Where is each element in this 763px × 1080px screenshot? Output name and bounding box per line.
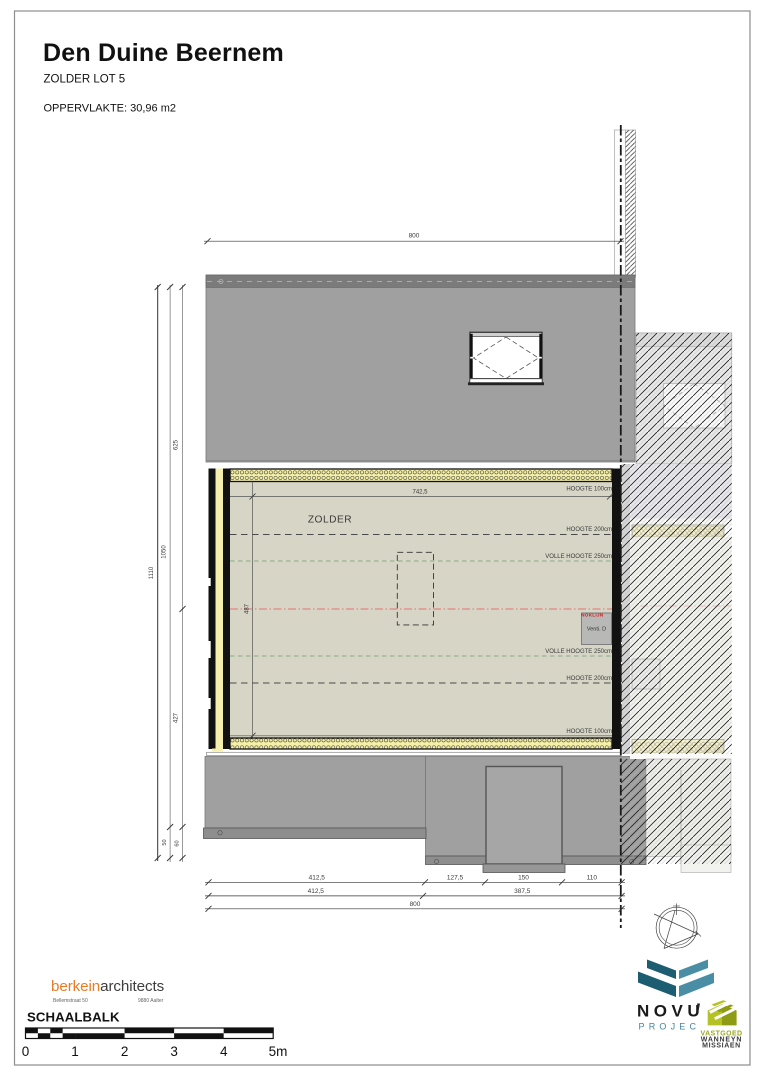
svg-text:NOVU: NOVU [637,1002,704,1021]
svg-text:ZOLDER: ZOLDER [308,515,352,526]
svg-text:SCHAALBALK: SCHAALBALK [27,1010,120,1025]
svg-text:berkeinarchitects: berkeinarchitects [51,978,165,995]
svg-text:1: 1 [71,1044,79,1059]
svg-text:ZOLDER LOT 5: ZOLDER LOT 5 [44,74,126,86]
svg-text:Venti. D: Venti. D [587,627,606,633]
svg-text:625: 625 [174,439,180,450]
svg-text:127,5: 127,5 [447,874,464,881]
svg-text:NOKLIJN: NOKLIJN [581,613,604,619]
svg-text:OPPERVLAKTE: 30,96 m2: OPPERVLAKTE: 30,96 m2 [44,103,176,115]
svg-text:742,5: 742,5 [412,490,428,496]
svg-text:1110: 1110 [149,566,155,579]
svg-text:Bellemstraat 50: Bellemstraat 50 [53,998,88,1004]
svg-text:387,5: 387,5 [514,888,531,895]
svg-text:2: 2 [121,1044,129,1059]
svg-text:HOOGTE 100cm: HOOGTE 100cm [566,487,612,493]
svg-text:5m: 5m [269,1044,288,1059]
svg-text:HOOGTE 200cm: HOOGTE 200cm [566,676,612,682]
svg-text:3: 3 [170,1044,178,1059]
svg-text:9880 Aalter: 9880 Aalter [138,998,164,1004]
svg-text:412,5: 412,5 [309,874,326,881]
svg-text:800: 800 [410,901,421,908]
svg-text:VOLLE HOOGTE 250cm: VOLLE HOOGTE 250cm [545,554,612,560]
svg-text:Den Duine Beernem: Den Duine Beernem [43,39,284,67]
svg-text:487: 487 [245,603,251,614]
svg-text:800: 800 [409,233,420,240]
svg-text:412,5: 412,5 [308,888,325,895]
svg-text:1050: 1050 [162,545,168,559]
svg-text:50: 50 [162,839,168,845]
svg-text:0: 0 [22,1044,30,1059]
svg-text:HOOGTE 100cm: HOOGTE 100cm [566,729,612,735]
svg-text:60: 60 [175,840,181,846]
svg-text:4: 4 [220,1044,228,1059]
svg-text:110: 110 [587,874,598,881]
svg-text:VOLLE HOOGTE 250cm: VOLLE HOOGTE 250cm [545,649,612,655]
svg-text:150: 150 [518,874,529,881]
svg-text:PROJEC: PROJEC [639,1022,701,1032]
svg-text:427: 427 [174,712,180,723]
svg-text:HOOGTE 200cm: HOOGTE 200cm [566,527,612,533]
svg-text:MISSIAEN: MISSIAEN [702,1043,741,1050]
